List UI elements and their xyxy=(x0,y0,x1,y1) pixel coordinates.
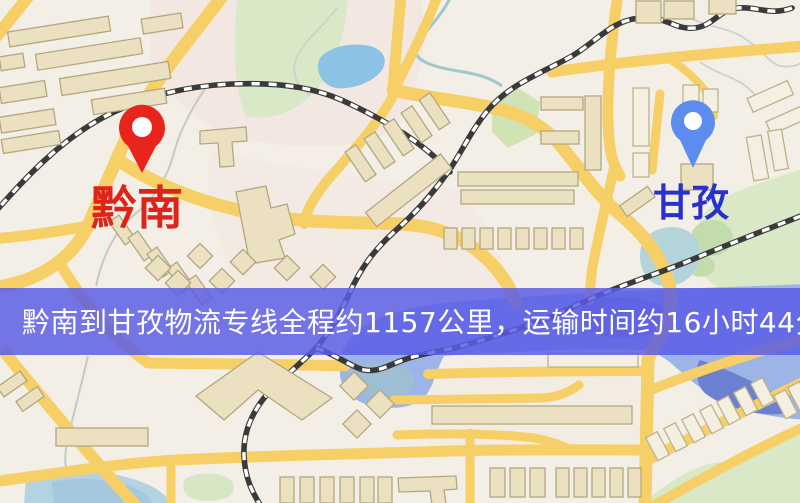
destination-label: 甘孜 xyxy=(653,181,729,225)
origin-label: 黔南 xyxy=(91,181,183,235)
destination-pin-hole xyxy=(684,112,702,130)
map-canvas[interactable]: 黔南到甘孜物流专线全程约1157公里，运输时间约16小时44分钟. 黔南 甘孜 xyxy=(0,0,800,503)
origin-pin-hole xyxy=(132,117,152,137)
map-screenshot: 黔南到甘孜物流专线全程约1157公里，运输时间约16小时44分钟. 黔南 甘孜 xyxy=(0,0,800,503)
route-banner: 黔南到甘孜物流专线全程约1157公里，运输时间约16小时44分钟. xyxy=(0,288,800,355)
route-banner-text: 黔南到甘孜物流专线全程约1157公里，运输时间约16小时44分钟. xyxy=(22,306,800,339)
